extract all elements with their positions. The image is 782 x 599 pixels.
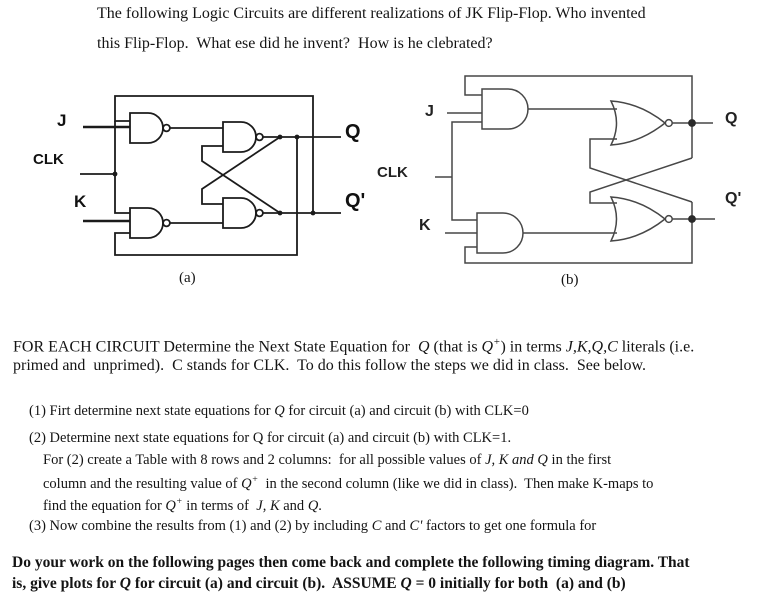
wire-a-cross-qprime-to-top: [202, 146, 280, 213]
circuits-layer: [0, 0, 782, 310]
circuit-b-diagram: [435, 76, 715, 263]
wire-a-clock-rail: [115, 121, 130, 213]
step-1: (1) Firt determine next state equations …: [29, 403, 529, 420]
wire-b-clock-rail: [452, 122, 482, 220]
gate-a-nand-j: [130, 113, 163, 143]
gate-a-nand-k: [130, 208, 163, 238]
junction-a-q-feedback: [295, 135, 300, 140]
bubble-b-nor-bottom: [665, 216, 672, 223]
label-a-j: J: [57, 111, 66, 131]
gate-b-and-k: [477, 213, 523, 253]
bubble-a-nand-k: [163, 220, 170, 227]
label-b-j: J: [425, 103, 434, 121]
junction-b-qprime-node: [688, 215, 696, 223]
label-a-k: K: [74, 192, 86, 212]
label-b-qprime: Q': [725, 190, 741, 208]
circuit-a-diagram: [80, 96, 341, 255]
label-b-clk: CLK: [377, 164, 408, 181]
junction-a-qprime-feedback: [311, 211, 316, 216]
bubble-b-nor-top: [665, 120, 672, 127]
step-2-line-1: (2) Determine next state equations for Q…: [29, 430, 511, 447]
junction-a-clk: [113, 172, 118, 177]
bubble-a-latch-bottom: [256, 210, 263, 217]
junction-a-qprime-cross: [278, 211, 283, 216]
instructions-line-1: FOR EACH CIRCUIT Determine the Next Stat…: [13, 336, 694, 356]
junction-a-q-cross: [278, 135, 283, 140]
wire-b-cross-qprime-to-top: [590, 139, 692, 202]
step-2-line-3: column and the resulting value of Q+ in …: [43, 474, 653, 493]
caption-circuit-a: (a): [179, 270, 196, 287]
label-a-clk: CLK: [33, 151, 64, 168]
gate-b-and-j: [482, 89, 528, 129]
bubble-a-nand-j: [163, 125, 170, 132]
gate-a-nand-latch-bottom: [223, 198, 256, 228]
step-2-line-2: For (2) create a Table with 8 rows and 2…: [43, 452, 611, 469]
label-b-k: K: [419, 217, 431, 235]
junction-b-q-node: [688, 119, 696, 127]
caption-circuit-b: (b): [561, 272, 579, 289]
instructions-line-2: primed and unprimed). C stands for CLK. …: [13, 357, 646, 375]
label-a-q: Q: [345, 121, 361, 144]
label-a-qprime: Q': [345, 190, 365, 213]
bubble-a-latch-top: [256, 134, 263, 141]
wire-a-cross-q-to-bottom: [202, 137, 280, 204]
gate-b-nor-top: [611, 101, 665, 145]
step-3: (3) Now combine the results from (1) and…: [29, 518, 596, 535]
gate-b-nor-bottom: [611, 197, 665, 241]
worksheet-page: The following Logic Circuits are differe…: [0, 0, 782, 599]
closing-line-2: is, give plots for Q for circuit (a) and…: [12, 575, 626, 593]
gate-a-nand-latch-top: [223, 122, 256, 152]
label-b-q: Q: [725, 110, 737, 128]
closing-line-1: Do your work on the following pages then…: [12, 554, 690, 572]
step-2-line-4: find the equation for Q+ in terms of J, …: [43, 496, 322, 515]
